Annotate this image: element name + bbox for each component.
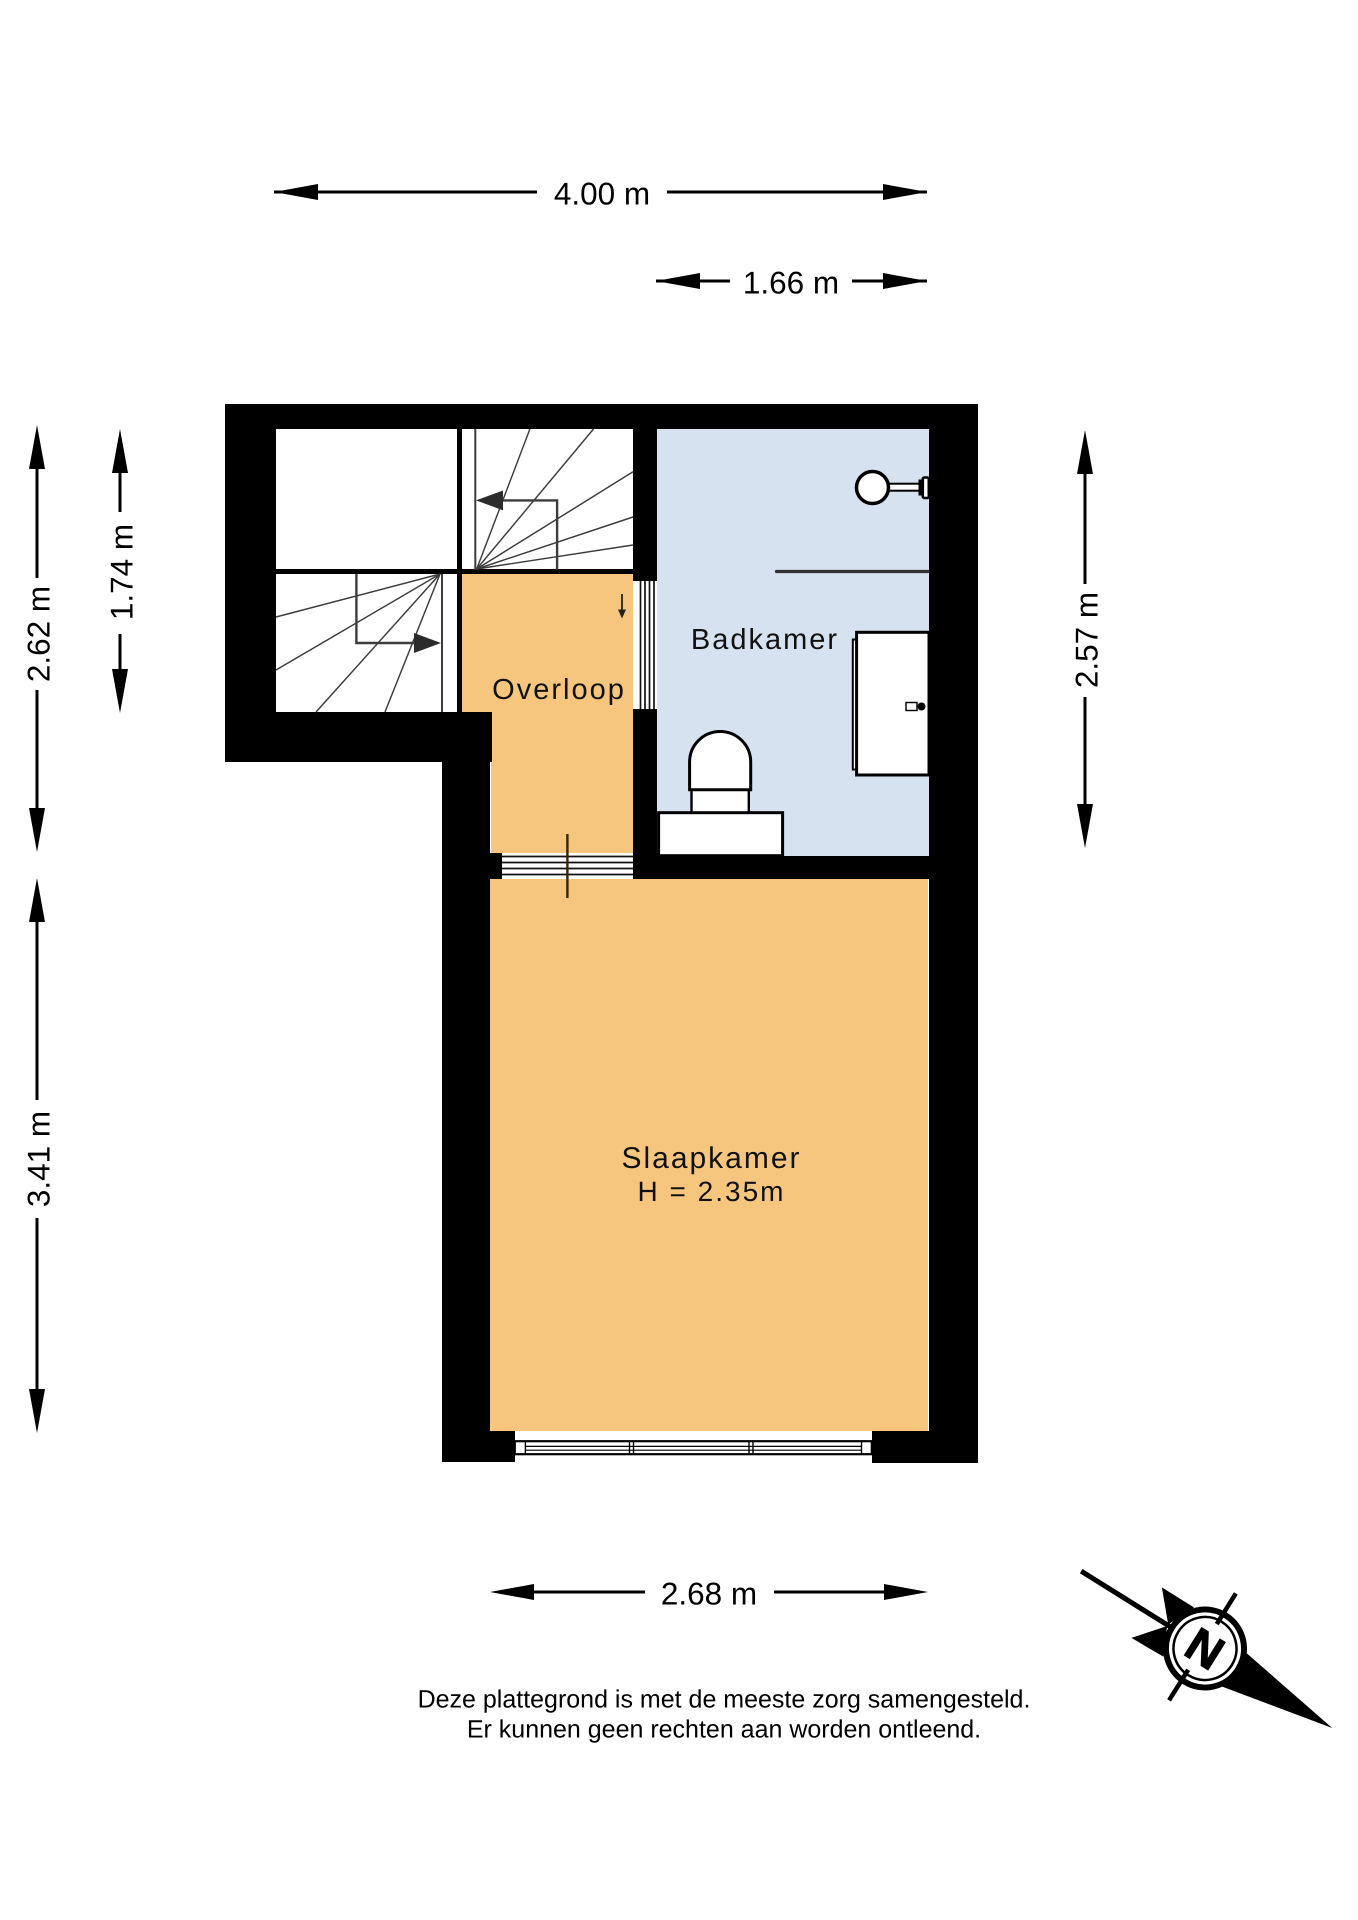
svg-text:2.57 m: 2.57 m [1069,592,1105,688]
svg-text:3.41 m: 3.41 m [21,1111,57,1207]
svg-text:2.68 m: 2.68 m [661,1576,757,1612]
svg-text:H = 2.35m: H = 2.35m [638,1176,786,1207]
svg-text:Slaapkamer: Slaapkamer [621,1142,801,1175]
svg-text:2.62 m: 2.62 m [21,586,57,682]
svg-text:Overloop: Overloop [492,674,626,706]
svg-text:Badkamer: Badkamer [691,624,839,656]
svg-text:4.00 m: 4.00 m [554,176,650,212]
svg-text:Er kunnen geen rechten aan wor: Er kunnen geen rechten aan worden ontlee… [467,1716,981,1744]
svg-text:1.74 m: 1.74 m [104,524,140,620]
svg-text:Deze plattegrond is met de mee: Deze plattegrond is met de meeste zorg s… [418,1686,1031,1714]
svg-text:1.66 m: 1.66 m [743,265,839,301]
